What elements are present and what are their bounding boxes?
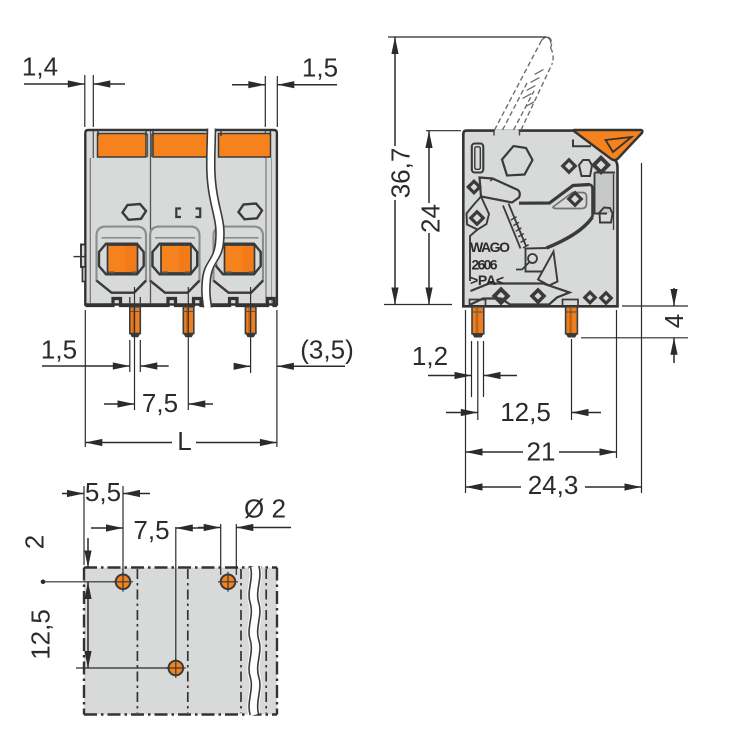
svg-text:7,5: 7,5 — [142, 388, 178, 418]
svg-text:1,2: 1,2 — [412, 341, 448, 371]
svg-text:1,4: 1,4 — [22, 51, 58, 81]
svg-text:12,5: 12,5 — [25, 609, 55, 660]
svg-text:7,5: 7,5 — [133, 515, 169, 545]
svg-text:>PA<: >PA< — [470, 272, 504, 288]
svg-text:Ø 2: Ø 2 — [244, 493, 286, 523]
svg-text:WAGO: WAGO — [470, 239, 510, 255]
svg-text:2: 2 — [19, 535, 49, 549]
svg-text:24: 24 — [415, 204, 445, 233]
svg-text:24,3: 24,3 — [528, 470, 579, 500]
svg-text:1,5: 1,5 — [302, 52, 338, 82]
svg-text:(3,5): (3,5) — [300, 334, 353, 364]
svg-text:L: L — [177, 426, 191, 456]
svg-text:12,5: 12,5 — [500, 397, 551, 427]
svg-text:36,7: 36,7 — [385, 148, 415, 199]
svg-text:21: 21 — [527, 436, 556, 466]
svg-text:2606: 2606 — [472, 257, 498, 273]
svg-text:5,5: 5,5 — [85, 477, 121, 507]
svg-text:4: 4 — [659, 314, 689, 328]
svg-text:1,5: 1,5 — [41, 334, 77, 364]
